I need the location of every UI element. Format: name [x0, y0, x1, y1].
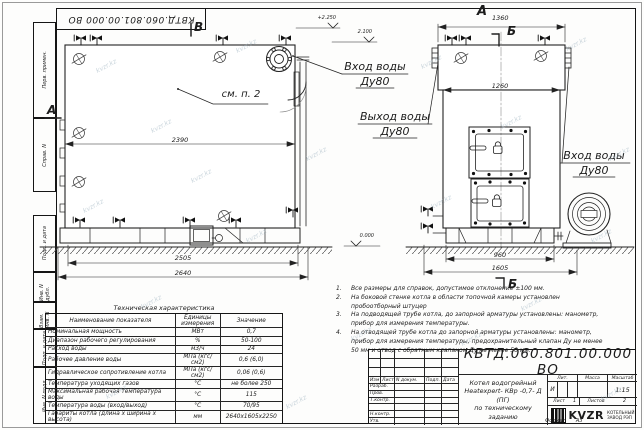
- mass-header: Масса: [578, 375, 608, 382]
- note-item: 3. На подводящей трубе котла, до запорно…: [336, 311, 632, 329]
- roof-valve-icon: [279, 35, 291, 45]
- tech-table-row: Габариты котла (длина х ширина х высота)…: [46, 410, 282, 423]
- elevation-mark-icon: [364, 37, 374, 42]
- dim-960: 960: [494, 251, 506, 259]
- section-b-letter: В: [194, 20, 203, 34]
- elev-top: +2.250: [317, 15, 336, 21]
- elev-pipe: 2.100: [358, 29, 372, 35]
- tech-table-row: Диапазон рабочего регулирования%50-100: [46, 336, 282, 345]
- scale-header: Масштаб: [608, 375, 637, 382]
- dim-1360: [438, 24, 565, 42]
- side-view-letter: А: [477, 4, 487, 19]
- side-valve-icon: [421, 206, 433, 216]
- tech-table-row: Гидравлическое сопротивление котлаМПа (к…: [46, 366, 282, 379]
- label-inlet-side: Вход воды: [563, 149, 624, 162]
- roof-valve-icon: [74, 35, 86, 45]
- scale-value: 1:15: [608, 382, 637, 398]
- label-inlet-front-dn: Ду80: [360, 75, 389, 88]
- base-frame-front: [60, 226, 300, 245]
- elevation-marks: [296, 23, 380, 246]
- kvzr-logo-sub: КОТЕЛЬНЫЙ ЗАВОД РЭП: [607, 411, 634, 420]
- dim-2505: 2505: [175, 254, 192, 262]
- label-outlet: Выход воды: [360, 110, 430, 123]
- side-valve-icon: [421, 223, 433, 233]
- lit-value: И: [548, 382, 558, 398]
- front-view: [45, 23, 309, 280]
- boiler-body-side: [443, 90, 560, 228]
- tech-table-row: Максимальная рабочая температура воды°С1…: [46, 388, 282, 401]
- tech-table-row: Рабочее давление водыМПа (кгс/см2)0,6 (6…: [46, 353, 282, 366]
- tech-table-row: Температура воды (вход/выход)°С70/95: [46, 401, 282, 410]
- lit-header: Лит.: [548, 375, 578, 382]
- drawing-sheet: Перв. примен. Справ. N Подп. и дата Инв.…: [0, 0, 644, 430]
- base-frame-side: [446, 228, 554, 243]
- blower-fan-icon: [563, 193, 611, 248]
- revision-table: Изм Лист N докум. Подп. Дата Разраб. Про…: [369, 350, 458, 425]
- elev-ground: 0.000: [360, 233, 374, 239]
- tech-table: Наименование показателя Единицы измерени…: [45, 313, 283, 424]
- title-doc-number: КВТД.060.801.00.000 ВО: [458, 350, 637, 375]
- dim-1605: 1605: [492, 264, 509, 272]
- mass-value: [578, 382, 608, 398]
- label-inlet-side-dn: Ду80: [579, 164, 608, 177]
- roof-valve-icon: [90, 35, 102, 45]
- section-b-top-mark: [492, 34, 499, 46]
- notes-list: 1. Все размеры для справок, допустимое о…: [336, 285, 632, 355]
- sheets-value: 2: [612, 398, 637, 406]
- dim-1360: 1360: [492, 14, 509, 22]
- note-item: 2. На боковой стенке котла в области топ…: [336, 294, 632, 312]
- elevation-mark-icon: [351, 241, 361, 246]
- note-item: 1. Все размеры для справок, допустимое о…: [336, 285, 632, 294]
- tech-table-row: Номинальная мощностьМВт0,7: [46, 327, 282, 336]
- tech-table-header: Наименование показателя Единицы измерени…: [46, 314, 282, 327]
- roof-valve-icon: [538, 35, 550, 45]
- title-block: Изм Лист N докум. Подп. Дата Разраб. Про…: [368, 349, 636, 424]
- sheet-value: 1: [570, 398, 580, 406]
- dim-2640: 2640: [175, 269, 192, 277]
- sheet-label: Лист: [548, 398, 570, 406]
- dim-1260: 1260: [492, 82, 509, 90]
- format-label: Формат А3: [545, 418, 583, 424]
- sheets-label: Листов: [580, 398, 612, 406]
- tech-table-row: Расход водым3/ч24: [46, 345, 282, 354]
- dim-2390: 2390: [172, 136, 189, 144]
- tech-table-title: Техническая характеристика: [113, 304, 214, 312]
- tech-table-row: Температура уходящих газов°Сне более 250: [46, 379, 282, 388]
- see-note-ref: см. п. 2: [222, 89, 261, 100]
- view-a-letter: А: [47, 103, 56, 117]
- roof-valve-icon: [445, 35, 457, 45]
- roof-valve-icon: [459, 35, 471, 45]
- section-b-top-letter: Б: [507, 24, 516, 38]
- ground-hatch: [40, 247, 634, 254]
- elevation-mark-icon: [328, 23, 338, 28]
- label-inlet-front: Вход воды: [344, 60, 405, 73]
- label-outlet-dn: Ду80: [380, 125, 409, 138]
- title-name-cell: Котел водогрейный Heatexpert- КВр -0,7- …: [458, 375, 548, 425]
- roof-valve-icon: [216, 35, 228, 45]
